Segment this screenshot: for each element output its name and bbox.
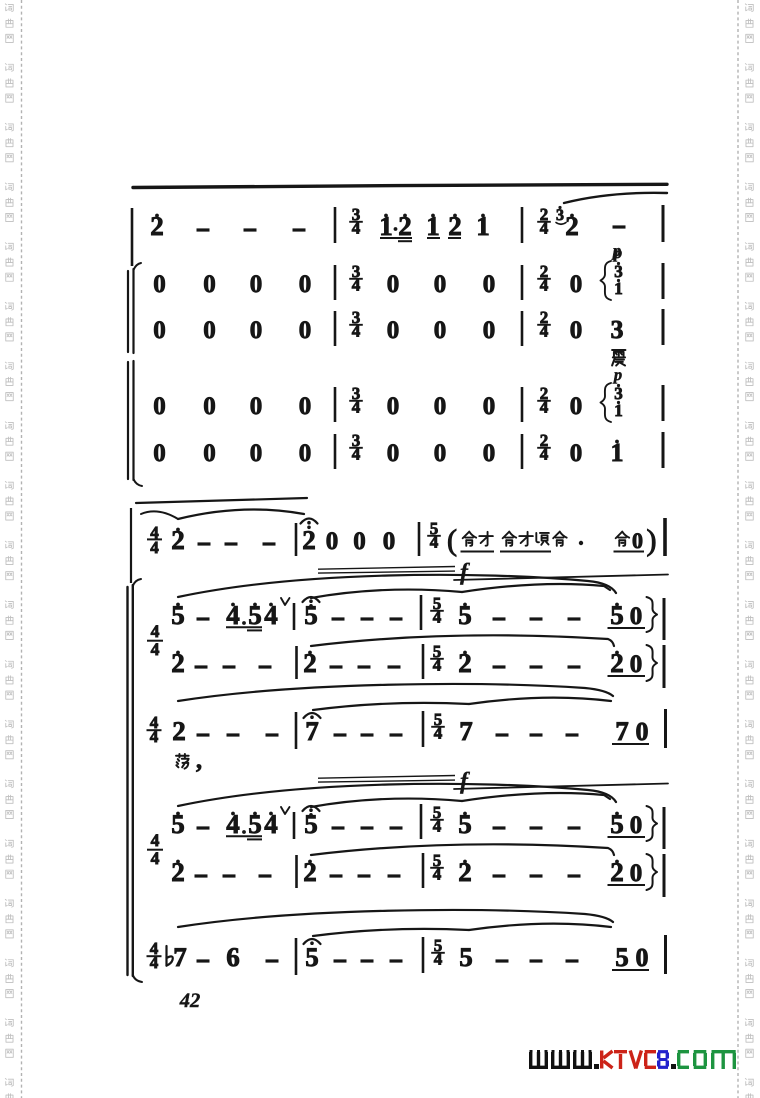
svg-text:0: 0 — [153, 393, 166, 420]
svg-text:4: 4 — [151, 848, 160, 868]
svg-text:4: 4 — [352, 276, 361, 295]
svg-text:0: 0 — [630, 812, 643, 839]
svg-text:2: 2 — [172, 716, 186, 746]
svg-text:0: 0 — [299, 393, 312, 420]
svg-text:0: 0 — [483, 393, 496, 420]
svg-text:0: 0 — [203, 440, 216, 467]
svg-text:4: 4 — [352, 322, 361, 341]
svg-text:4: 4 — [151, 621, 160, 641]
svg-text:5: 5 — [459, 942, 473, 972]
svg-text:4: 4 — [150, 538, 159, 557]
svg-text:42: 42 — [179, 990, 201, 1012]
svg-text:(: ( — [447, 524, 457, 557]
svg-text:p: p — [612, 365, 622, 384]
svg-text:0: 0 — [383, 528, 396, 555]
svg-text:3: 3 — [611, 315, 624, 344]
svg-text:4: 4 — [540, 219, 549, 238]
svg-text:4: 4 — [540, 398, 549, 417]
svg-text:4: 4 — [433, 817, 442, 836]
svg-text:0: 0 — [483, 440, 496, 467]
svg-text:4: 4 — [433, 865, 442, 884]
svg-text:0: 0 — [434, 440, 447, 467]
svg-text:4: 4 — [151, 639, 160, 659]
svg-text:4: 4 — [434, 724, 443, 743]
svg-text:0: 0 — [570, 317, 583, 344]
svg-text:0: 0 — [250, 317, 263, 344]
svg-text:4: 4 — [540, 276, 549, 295]
svg-text:5: 5 — [615, 942, 629, 972]
svg-text:0: 0 — [434, 393, 447, 420]
svg-text:0: 0 — [483, 317, 496, 344]
svg-text:0: 0 — [632, 528, 643, 553]
svg-text:0: 0 — [387, 317, 400, 344]
svg-text:0: 0 — [630, 603, 643, 630]
svg-text:7: 7 — [173, 942, 187, 972]
svg-text:2: 2 — [302, 525, 316, 555]
svg-text:0: 0 — [250, 393, 263, 420]
svg-text:0: 0 — [434, 271, 447, 298]
svg-text:0: 0 — [353, 528, 366, 555]
svg-text:4: 4 — [352, 398, 361, 417]
svg-text:0: 0 — [153, 271, 166, 298]
svg-text:0: 0 — [203, 393, 216, 420]
svg-text:7: 7 — [459, 716, 473, 746]
svg-text:0: 0 — [299, 271, 312, 298]
svg-text:4: 4 — [434, 950, 443, 969]
svg-text:4: 4 — [540, 322, 549, 341]
svg-text:0: 0 — [326, 528, 339, 555]
svg-text:4: 4 — [540, 445, 549, 464]
svg-text:0: 0 — [630, 651, 643, 678]
svg-text:4: 4 — [150, 953, 159, 972]
svg-text:4: 4 — [150, 727, 159, 746]
svg-text:4: 4 — [352, 445, 361, 464]
svg-text:0: 0 — [250, 271, 263, 298]
svg-text:0: 0 — [387, 393, 400, 420]
svg-text:0: 0 — [153, 317, 166, 344]
svg-text:0: 0 — [483, 271, 496, 298]
svg-text:6: 6 — [226, 942, 240, 972]
svg-text:p: p — [612, 243, 622, 262]
svg-text:7: 7 — [615, 716, 629, 746]
svg-text:5: 5 — [305, 942, 319, 972]
svg-text:): ) — [647, 524, 657, 557]
svg-text:0: 0 — [203, 317, 216, 344]
svg-text:0: 0 — [299, 317, 312, 344]
svg-text:4: 4 — [151, 830, 160, 850]
svg-text:4: 4 — [433, 608, 442, 627]
svg-text:0: 0 — [153, 440, 166, 467]
svg-text:7: 7 — [305, 716, 319, 746]
svg-text:0: 0 — [570, 393, 583, 420]
svg-text:0: 0 — [570, 271, 583, 298]
svg-text:0: 0 — [636, 717, 649, 746]
svg-text:0: 0 — [387, 440, 400, 467]
svg-text:3: 3 — [556, 207, 564, 224]
svg-text:0: 0 — [203, 271, 216, 298]
svg-text:0: 0 — [250, 440, 263, 467]
svg-text:0: 0 — [570, 440, 583, 467]
svg-text:0: 0 — [636, 943, 649, 972]
svg-text:0: 0 — [630, 860, 643, 887]
svg-text:,: , — [196, 748, 202, 774]
svg-text:0: 0 — [387, 271, 400, 298]
svg-text:0: 0 — [299, 440, 312, 467]
svg-text:4: 4 — [430, 533, 439, 552]
svg-text:0: 0 — [434, 317, 447, 344]
svg-text:4: 4 — [433, 656, 442, 675]
svg-text:4: 4 — [352, 219, 361, 238]
